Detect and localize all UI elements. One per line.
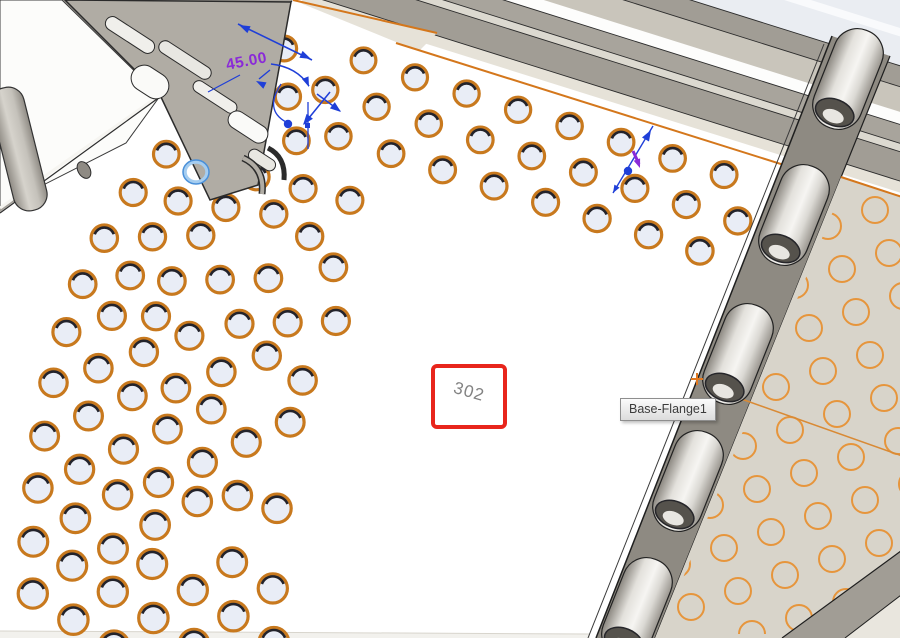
drag-point-handle[interactable] [624, 167, 632, 175]
hole-circle[interactable] [430, 157, 456, 183]
hole-circle[interactable] [725, 208, 751, 234]
hole[interactable] [673, 192, 699, 218]
hole-circle[interactable] [261, 201, 287, 227]
hole[interactable] [416, 111, 441, 136]
feature-tooltip-text: Base-Flange1 [629, 402, 707, 416]
hole[interactable] [188, 222, 214, 248]
hole-circle[interactable] [188, 222, 214, 248]
hole-circle[interactable] [608, 129, 634, 155]
hole-circle[interactable] [58, 551, 87, 580]
hole[interactable] [178, 576, 207, 605]
hole[interactable] [208, 358, 235, 385]
hole[interactable] [263, 494, 291, 522]
hole[interactable] [290, 176, 316, 202]
hole-circle[interactable] [198, 395, 226, 423]
hole[interactable] [198, 395, 226, 423]
hole-circle[interactable] [91, 225, 117, 251]
hole-circle[interactable] [711, 162, 737, 188]
hole[interactable] [289, 367, 316, 394]
hole[interactable] [31, 422, 59, 450]
hole[interactable] [430, 157, 456, 183]
hole[interactable] [154, 141, 180, 167]
hole-circle[interactable] [226, 310, 253, 337]
hole[interactable] [19, 527, 48, 556]
hole-circle[interactable] [337, 187, 363, 213]
hole[interactable] [468, 127, 494, 153]
hole-circle[interactable] [297, 223, 323, 249]
hole-circle[interactable] [351, 48, 376, 73]
hole-circle[interactable] [263, 494, 291, 522]
hole-circle[interactable] [61, 504, 90, 533]
hole[interactable] [110, 435, 138, 463]
hole[interactable] [226, 310, 253, 337]
hole-circle[interactable] [19, 527, 48, 556]
hole-circle[interactable] [533, 189, 559, 215]
hole[interactable] [519, 143, 545, 169]
hole-circle[interactable] [481, 173, 507, 199]
cad-viewport[interactable]: 45.00 302 Base-Flange1 [0, 0, 900, 638]
hole[interactable] [144, 468, 172, 496]
hole-circle[interactable] [144, 468, 172, 496]
hole-circle[interactable] [178, 576, 207, 605]
hole[interactable] [297, 223, 323, 249]
hole-circle[interactable] [258, 574, 287, 603]
hole-circle[interactable] [636, 222, 662, 248]
hole-circle[interactable] [154, 415, 182, 443]
hole-circle[interactable] [103, 481, 131, 509]
hole-circle[interactable] [208, 358, 235, 385]
hole[interactable] [165, 188, 191, 214]
hole-circle[interactable] [276, 408, 304, 436]
hole-circle[interactable] [660, 146, 686, 172]
hole[interactable] [320, 254, 347, 281]
hole[interactable] [351, 48, 376, 73]
hole-circle[interactable] [416, 111, 441, 136]
hole[interactable] [130, 338, 157, 365]
hole[interactable] [274, 309, 301, 336]
hole-circle[interactable] [139, 603, 168, 632]
hole[interactable] [481, 173, 507, 199]
hole-circle[interactable] [69, 271, 96, 298]
hole-circle[interactable] [378, 141, 404, 167]
hole-circle[interactable] [138, 550, 167, 579]
hole[interactable] [75, 402, 103, 430]
hole[interactable] [103, 481, 131, 509]
hole[interactable] [120, 180, 146, 206]
hole[interactable] [98, 302, 125, 329]
hole-circle[interactable] [120, 180, 146, 206]
hole[interactable] [183, 487, 211, 515]
hole-circle[interactable] [232, 428, 260, 456]
hole[interactable] [66, 455, 94, 483]
hole[interactable] [207, 266, 234, 293]
hole[interactable] [364, 94, 389, 119]
hole[interactable] [139, 224, 165, 250]
hole-circle[interactable] [289, 367, 316, 394]
hole-circle[interactable] [85, 355, 112, 382]
hole-circle[interactable] [130, 338, 157, 365]
hole-circle[interactable] [274, 309, 301, 336]
drag-point-handle[interactable] [284, 120, 292, 128]
hole[interactable] [219, 602, 248, 631]
target-annotation-box: 302 [431, 364, 507, 429]
hole-circle[interactable] [24, 474, 52, 502]
hole[interactable] [141, 511, 170, 540]
hole-circle[interactable] [154, 141, 180, 167]
hole[interactable] [99, 534, 128, 563]
vertex-handle[interactable] [305, 123, 310, 128]
hole-circle[interactable] [31, 422, 59, 450]
hole-circle[interactable] [176, 322, 203, 349]
hole[interactable] [91, 225, 117, 251]
hole[interactable] [253, 342, 280, 369]
hole[interactable] [557, 113, 582, 138]
hole-circle[interactable] [584, 205, 610, 231]
model-view[interactable] [0, 0, 900, 638]
hole[interactable] [40, 369, 67, 396]
hole-circle[interactable] [454, 81, 479, 106]
hole[interactable] [622, 175, 648, 201]
hole-circle[interactable] [119, 382, 147, 410]
feature-tooltip: Base-Flange1 [620, 398, 716, 421]
hole[interactable] [322, 308, 349, 335]
hole[interactable] [258, 574, 287, 603]
hole-circle[interactable] [320, 254, 347, 281]
hole-circle[interactable] [40, 369, 67, 396]
hole[interactable] [337, 187, 363, 213]
hole[interactable] [255, 265, 282, 292]
hole[interactable] [687, 238, 713, 264]
hole[interactable] [454, 81, 479, 106]
hole-circle[interactable] [159, 268, 186, 295]
hole-circle[interactable] [110, 435, 138, 463]
hole-circle[interactable] [162, 374, 190, 402]
hole[interactable] [188, 448, 216, 476]
hole-circle[interactable] [53, 319, 80, 346]
hole[interactable] [98, 577, 127, 606]
hole[interactable] [59, 605, 88, 634]
hole[interactable] [711, 162, 737, 188]
hole-circle[interactable] [253, 342, 280, 369]
hole-circle[interactable] [143, 303, 170, 330]
hole[interactable] [139, 603, 168, 632]
hole[interactable] [119, 382, 147, 410]
hole-circle[interactable] [223, 481, 251, 509]
hole[interactable] [117, 262, 144, 289]
hole[interactable] [223, 481, 251, 509]
hole[interactable] [326, 124, 351, 149]
hole[interactable] [138, 550, 167, 579]
hole[interactable] [69, 271, 96, 298]
hole[interactable] [284, 128, 310, 154]
hole[interactable] [85, 355, 112, 382]
hole-circle[interactable] [557, 113, 582, 138]
hole[interactable] [53, 319, 80, 346]
hole[interactable] [505, 97, 530, 122]
hole[interactable] [571, 159, 597, 185]
hole-circle[interactable] [141, 511, 170, 540]
hole-circle[interactable] [255, 265, 282, 292]
hole-circle[interactable] [98, 302, 125, 329]
hole-circle[interactable] [183, 487, 211, 515]
hole[interactable] [143, 303, 170, 330]
hole[interactable] [176, 322, 203, 349]
hole[interactable] [232, 428, 260, 456]
hole-circle[interactable] [218, 548, 247, 577]
hole[interactable] [218, 548, 247, 577]
hole-circle[interactable] [98, 577, 127, 606]
hole[interactable] [533, 189, 559, 215]
hole[interactable] [58, 551, 87, 580]
hole[interactable] [24, 474, 52, 502]
hole-circle[interactable] [75, 402, 103, 430]
hole-circle[interactable] [139, 224, 165, 250]
hole-circle[interactable] [165, 188, 191, 214]
hole[interactable] [725, 208, 751, 234]
hole-circle[interactable] [673, 192, 699, 218]
hole[interactable] [608, 129, 634, 155]
hole[interactable] [636, 222, 662, 248]
hole[interactable] [403, 65, 428, 90]
hole[interactable] [660, 146, 686, 172]
hole[interactable] [276, 408, 304, 436]
hole[interactable] [162, 374, 190, 402]
hole[interactable] [378, 141, 404, 167]
hole-circle[interactable] [571, 159, 597, 185]
hole[interactable] [61, 504, 90, 533]
hole[interactable] [154, 415, 182, 443]
hole[interactable] [159, 268, 186, 295]
target-annotation-label: 302 [434, 373, 505, 411]
hole-circle[interactable] [59, 605, 88, 634]
hole-circle[interactable] [99, 534, 128, 563]
hole-circle[interactable] [188, 448, 216, 476]
hole-circle[interactable] [18, 579, 47, 608]
hole[interactable] [261, 201, 287, 227]
hole-circle[interactable] [219, 602, 248, 631]
hole[interactable] [18, 579, 47, 608]
hole[interactable] [584, 205, 610, 231]
hole-circle[interactable] [207, 266, 234, 293]
hole-circle[interactable] [687, 238, 713, 264]
hole-circle[interactable] [117, 262, 144, 289]
hole-circle[interactable] [519, 143, 545, 169]
hole-circle[interactable] [66, 455, 94, 483]
hole-circle[interactable] [468, 127, 494, 153]
hole-circle[interactable] [322, 308, 349, 335]
